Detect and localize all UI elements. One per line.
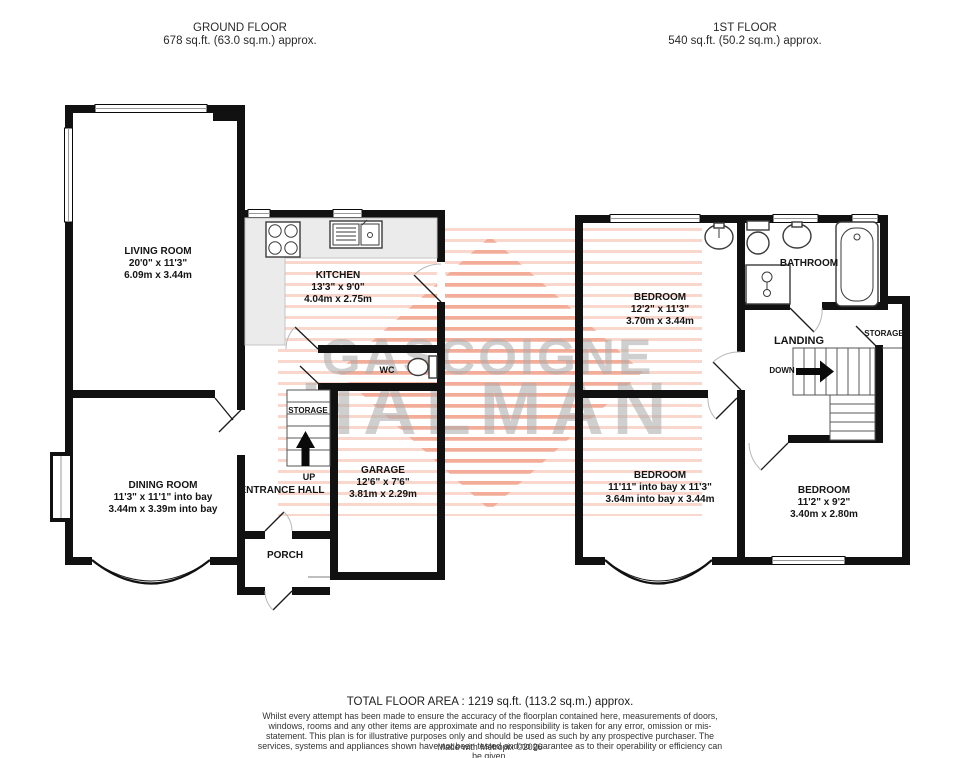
down-label: DOWN <box>769 365 794 377</box>
first-floor-plan <box>575 215 910 584</box>
ground-floor-title: GROUND FLOOR <box>163 22 316 35</box>
storage-label-first: STORAGE <box>864 328 903 340</box>
first-floor-header: 1ST FLOOR 540 sq.ft. (50.2 sq.m.) approx… <box>668 22 821 48</box>
floorplan-drawing <box>0 0 980 758</box>
first-floor-title: 1ST FLOOR <box>668 22 821 35</box>
basin-icon-bathroom <box>783 222 811 248</box>
bedroom-rear-label: BEDROOM 11'2" x 9'2" 3.40m x 2.80m <box>790 485 858 521</box>
garage-label: GARAGE 12'6" x 7'6" 3.81m x 2.29m <box>349 465 417 501</box>
storage-label-ground: STORAGE <box>288 405 327 417</box>
bathroom-label: BATHROOM <box>780 258 838 270</box>
wc-label: WC <box>380 364 395 376</box>
hob-icon <box>266 222 300 257</box>
ground-floor-header: GROUND FLOOR 678 sq.ft. (63.0 sq.m.) app… <box>163 22 316 48</box>
stairs-down <box>793 348 875 440</box>
toilet-icon-bathroom <box>747 221 769 254</box>
up-label: UP <box>303 471 316 483</box>
first-floor-area: 540 sq.ft. (50.2 sq.m.) approx. <box>668 35 821 48</box>
bedroom-bay-label: BEDROOM 11'11" into bay x 11'3" 3.64m in… <box>606 470 715 506</box>
ground-floor-area: 678 sq.ft. (63.0 sq.m.) approx. <box>163 35 316 48</box>
porch-label: PORCH <box>267 550 303 562</box>
landing-label: LANDING <box>774 335 824 347</box>
shower-icon <box>746 265 790 304</box>
stairs-up <box>287 390 330 466</box>
down-arrow-icon <box>796 368 821 375</box>
sink-icon <box>330 220 382 248</box>
credit-text: Made with Metropix ©2026 <box>438 742 543 752</box>
toilet-icon-wc <box>408 356 437 378</box>
bay-window-bedroom <box>605 560 712 584</box>
up-arrow-icon <box>302 446 310 466</box>
floorplan-page: GASCOIGNE HALMAN <box>0 0 980 758</box>
dining-room-label: DINING ROOM 11'3" x 11'1" into bay 3.44m… <box>109 480 218 516</box>
ground-floor-plan <box>50 105 445 611</box>
bathtub-icon <box>836 222 878 306</box>
bedroom-front-label: BEDROOM 12'2" x 11'3" 3.70m x 3.44m <box>626 292 694 328</box>
bay-window-dining <box>92 560 210 584</box>
basin-icon-bedroom <box>705 223 733 249</box>
kitchen-label: KITCHEN 13'3" x 9'0" 4.04m x 2.75m <box>304 270 372 306</box>
ground-walls <box>65 105 445 595</box>
total-floor-area: TOTAL FLOOR AREA : 1219 sq.ft. (113.2 sq… <box>347 696 634 708</box>
entrance-hall-label: ENTRANCE HALL <box>240 485 325 497</box>
living-room-label: LIVING ROOM 20'0" x 11'3" 6.09m x 3.44m <box>124 246 192 282</box>
